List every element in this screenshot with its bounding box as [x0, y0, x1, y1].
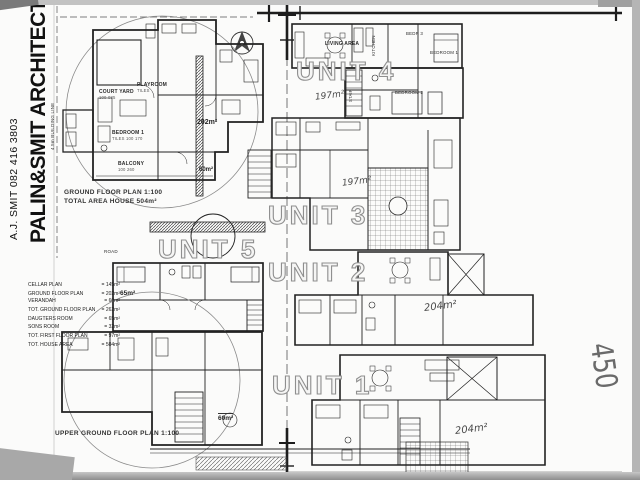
schedule-value: = 504m²: [102, 342, 120, 348]
road-label: ROAD: [104, 249, 118, 254]
unit1-title: UNIT 1: [272, 371, 372, 401]
first-floor-plan-drawing: [113, 263, 263, 331]
unit4-title: UNIT 4: [296, 57, 396, 87]
unit3-title: UNIT 3: [268, 201, 368, 231]
scan-edge-bottom: [0, 472, 640, 480]
bedroom1-label: BEDROOM 1TILES 100 170: [112, 131, 144, 142]
north-arrow-icon: [231, 31, 253, 54]
unit4-living-area-label: LIVING AREA: [325, 42, 359, 48]
upper-plan-area-value: 60m²: [218, 413, 233, 422]
verandah-area-value: 60m²: [199, 167, 213, 174]
upper-ground-floor-caption: UPPER GROUND FLOOR PLAN 1:100: [55, 430, 179, 437]
living-area-value: 202m²: [197, 119, 217, 127]
schedule-label: TOT. GROUND FLOOR PLAN: [28, 307, 95, 313]
area-schedule-row: GROUND FLOOR PLAN= 202m²: [28, 291, 120, 297]
playroom-label: PLAYROOMTILES: [137, 83, 167, 94]
building-line-left-label: 4.5m BUILDING LINE: [50, 103, 55, 150]
schedule-label: GROUND FLOOR PLAN: [28, 291, 83, 297]
scan-edge-top: [0, 0, 640, 5]
schedule-value: = 202m²: [102, 291, 120, 297]
schedule-value: = 262m²: [102, 307, 120, 313]
schedule-label: TOT. FIRST FLOOR PLAN: [28, 333, 88, 339]
total-area-caption: TOTAL AREA HOUSE 504m²: [64, 198, 157, 205]
room-mark: 100 260: [118, 168, 144, 173]
schedule-label: CELLAR PLAN: [28, 282, 62, 288]
schedule-value: = 32m²: [104, 324, 120, 330]
room-mark: TILES 100 170: [112, 137, 144, 142]
schedule-value: = 145m²: [102, 282, 120, 288]
schedule-label: TOT. HOUSE AREA: [28, 342, 73, 348]
unit4-stair-label: STAIR: [349, 89, 354, 102]
scan-edge-right: [632, 0, 640, 480]
balcony-label: BALCONY100 260: [118, 162, 144, 173]
architect-contact: A.J. SMIT 082 416 3803: [8, 118, 20, 240]
area-schedule-row: VERANDAH= 60m²: [28, 298, 120, 304]
unit5-title: UNIT 5: [158, 235, 258, 265]
schedule-label: DAUGTERS ROOM: [28, 316, 73, 322]
schedule-label: VERANDAH: [28, 298, 56, 304]
upper-ground-floor-plan-drawing: [62, 292, 470, 476]
area-schedule: CELLAR PLAN= 145m² GROUND FLOOR PLAN= 20…: [28, 282, 120, 349]
schedule-value: = 65m²: [104, 316, 120, 322]
area-schedule-row: TOT. FIRST FLOOR PLAN= 97m²: [28, 333, 120, 339]
room-mark: TILES: [137, 89, 167, 94]
unit4-bedroom1-label: BEDROOM 1: [430, 50, 458, 55]
unit4-bedroom2-label: BEDROOM 2: [395, 90, 423, 95]
ground-floor-caption: GROUND FLOOR PLAN 1:100: [64, 189, 162, 196]
unit4-bedr3-label: BEDR 3: [406, 31, 423, 36]
schedule-value: = 97m²: [104, 333, 120, 339]
area-schedule-row: TOT. HOUSE AREA= 504m²: [28, 342, 120, 348]
unit2-title: UNIT 2: [268, 258, 368, 288]
area-schedule-row: TOT. GROUND FLOOR PLAN= 262m²: [28, 307, 120, 313]
first-floor-area-value: 65m²: [120, 290, 135, 297]
handwritten-450-sketch: 450: [583, 341, 624, 391]
area-schedule-row: SONS ROOM= 32m²: [28, 324, 120, 330]
schedule-value: = 60m²: [104, 298, 120, 304]
court-yard-label: COURT YARD100 085: [99, 90, 134, 101]
firm-name: PALIN&SMIT ARCHITECTS: [27, 0, 51, 243]
architectural-drawing-sheet: PALIN&SMIT ARCHITECTS A.J. SMIT 082 416 …: [0, 0, 640, 480]
room-mark: 100 085: [99, 96, 134, 101]
unit4-kitchen-label: KITCHEN: [371, 35, 376, 56]
area-schedule-row: DAUGTERS ROOM= 65m²: [28, 316, 120, 322]
ground-floor-plan-drawing: [63, 16, 271, 258]
schedule-label: SONS ROOM: [28, 324, 59, 330]
area-schedule-row: CELLAR PLAN= 145m²: [28, 282, 120, 288]
